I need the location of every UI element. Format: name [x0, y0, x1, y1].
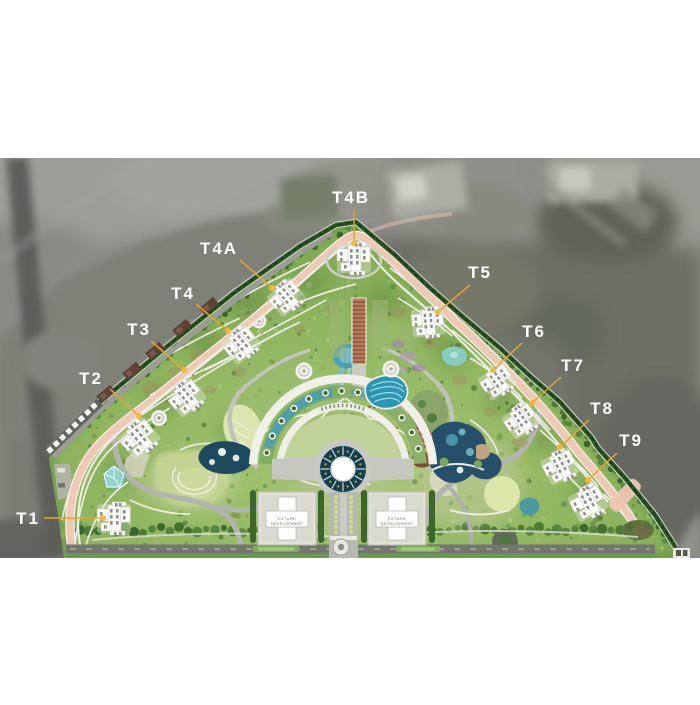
svg-text:T5: T5 [468, 263, 492, 282]
svg-text:T7: T7 [561, 356, 585, 375]
svg-text:T4A: T4A [200, 239, 238, 258]
svg-text:T3: T3 [127, 320, 151, 339]
svg-text:T2: T2 [79, 369, 103, 388]
svg-text:DEVELOPMENT: DEVELOPMENT [271, 521, 304, 526]
svg-text:T8: T8 [590, 399, 614, 418]
svg-text:T6: T6 [522, 322, 546, 341]
svg-text:T4B: T4B [332, 188, 370, 207]
svg-text:T1: T1 [16, 509, 40, 528]
svg-text:DEVELOPMENT: DEVELOPMENT [381, 521, 414, 526]
svg-text:T4: T4 [171, 284, 195, 303]
svg-text:T9: T9 [619, 431, 643, 450]
